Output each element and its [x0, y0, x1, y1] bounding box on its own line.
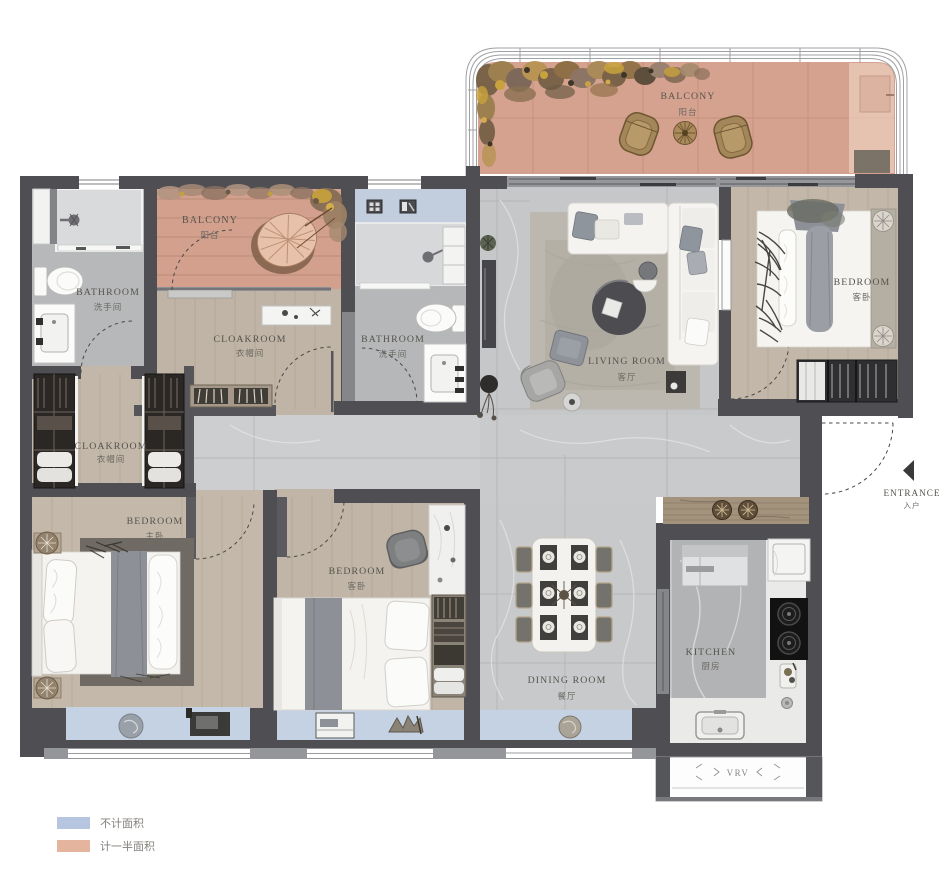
svg-text:BEDROOM: BEDROOM	[834, 277, 891, 288]
svg-text:VRV: VRV	[727, 768, 750, 778]
svg-text:主卧: 主卧	[145, 531, 164, 541]
svg-text:DINING ROOM: DINING ROOM	[528, 675, 607, 686]
svg-text:阳台: 阳台	[678, 107, 697, 117]
svg-text:衣帽间: 衣帽间	[97, 454, 126, 464]
svg-text:BEDROOM: BEDROOM	[127, 516, 184, 527]
svg-text:阳台: 阳台	[200, 230, 219, 240]
svg-text:LIVING ROOM: LIVING ROOM	[588, 356, 666, 367]
svg-text:厨房: 厨房	[701, 661, 720, 671]
svg-text:BATHROOM: BATHROOM	[361, 334, 425, 345]
svg-text:衣帽间: 衣帽间	[236, 348, 265, 358]
svg-text:餐厅: 餐厅	[557, 691, 576, 701]
svg-text:计一半面积: 计一半面积	[100, 839, 155, 853]
svg-text:入户: 入户	[904, 500, 921, 510]
svg-text:客卧: 客卧	[347, 581, 366, 591]
svg-text:客厅: 客厅	[617, 372, 636, 382]
svg-text:CLOAKROOM: CLOAKROOM	[74, 441, 147, 452]
svg-text:CLOAKROOM: CLOAKROOM	[213, 334, 286, 345]
svg-text:洗手间: 洗手间	[379, 349, 408, 359]
svg-text:BATHROOM: BATHROOM	[76, 287, 140, 298]
svg-text:客卧: 客卧	[852, 292, 871, 302]
svg-text:BALCONY: BALCONY	[660, 91, 715, 102]
svg-text:BEDROOM: BEDROOM	[329, 566, 386, 577]
svg-text:洗手间: 洗手间	[94, 302, 123, 312]
svg-text:ENTRANCE: ENTRANCE	[884, 488, 941, 498]
svg-text:BALCONY: BALCONY	[182, 215, 238, 226]
svg-text:KITCHEN: KITCHEN	[686, 647, 737, 658]
svg-text:不计面积: 不计面积	[100, 817, 144, 830]
